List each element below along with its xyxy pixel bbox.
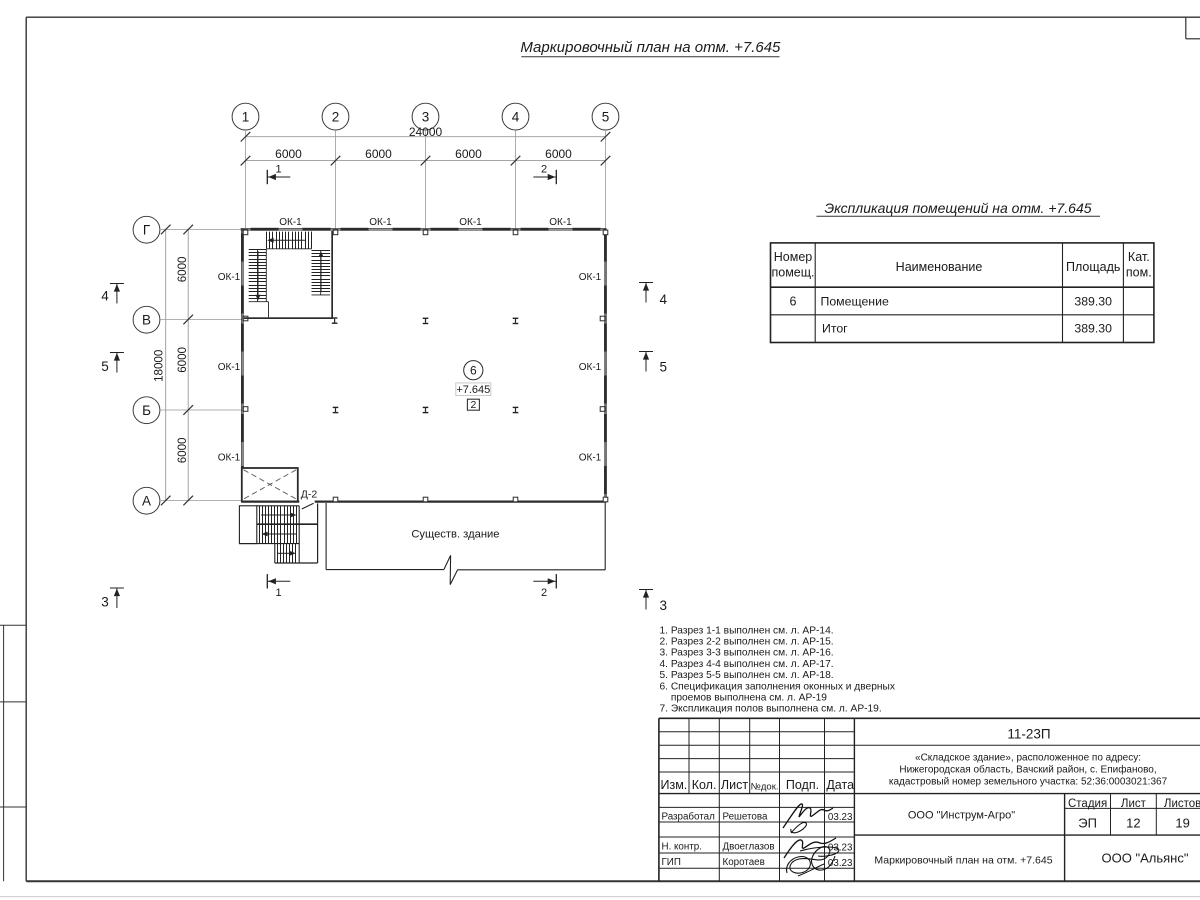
svg-text:А: А: [142, 494, 151, 509]
svg-text:Изм.: Изм.: [661, 778, 688, 792]
svg-text:1: 1: [276, 587, 282, 599]
svg-text:6: 6: [790, 295, 797, 309]
svg-text:2. Разрез 2-2 выполнен см. л.: 2. Разрез 2-2 выполнен см. л. АР-15.: [660, 637, 834, 648]
svg-text:№док.: №док.: [751, 782, 779, 793]
svg-text:Стадия: Стадия: [1068, 798, 1107, 810]
svg-text:ОК-1: ОК-1: [579, 272, 602, 283]
svg-text:5: 5: [602, 109, 610, 124]
svg-text:«Складское здание», расположен: «Складское здание», расположенное по адр…: [915, 753, 1141, 764]
svg-text:18000: 18000: [153, 350, 166, 382]
svg-text:Решетова: Решетова: [723, 811, 768, 822]
svg-text:6000: 6000: [176, 257, 189, 283]
svg-text:1: 1: [242, 109, 250, 124]
svg-text:6: 6: [470, 364, 477, 378]
svg-text:ОК-1: ОК-1: [549, 217, 572, 228]
svg-text:6000: 6000: [176, 438, 189, 464]
svg-text:3. Разрез 3-3 выполнен см. л.: 3. Разрез 3-3 выполнен см. л. АР-16.: [660, 648, 834, 659]
svg-text:ОК-1: ОК-1: [579, 453, 602, 464]
svg-text:Листов: Листов: [1164, 798, 1200, 810]
svg-text:6. Спецификация заполнения око: 6. Спецификация заполнения оконных и две…: [660, 680, 895, 692]
svg-text:Н. контр.: Н. контр.: [662, 842, 702, 853]
svg-text:Д-2: Д-2: [301, 489, 318, 501]
svg-text:ЭП: ЭП: [1078, 815, 1097, 830]
svg-text:6000: 6000: [176, 347, 189, 373]
svg-text:+7.645: +7.645: [456, 384, 490, 396]
svg-text:Итог: Итог: [822, 322, 848, 336]
svg-text:ООО "Инструм-Агро": ООО "Инструм-Агро": [908, 810, 1015, 822]
svg-text:ООО "Альянс": ООО "Альянс": [1102, 851, 1189, 866]
svg-text:помещ.: помещ.: [771, 266, 814, 280]
svg-text:ГИП: ГИП: [662, 857, 681, 868]
svg-text:4. Разрез 4-4 выполнен см. л.: 4. Разрез 4-4 выполнен см. л. АР-17.: [660, 659, 834, 670]
svg-text:ОК-1: ОК-1: [218, 362, 241, 373]
svg-text:03.23: 03.23: [828, 842, 853, 853]
svg-text:1: 1: [276, 164, 282, 176]
svg-text:389.30: 389.30: [1074, 322, 1112, 336]
svg-text:19: 19: [1175, 815, 1189, 830]
svg-text:ОК-1: ОК-1: [279, 217, 302, 228]
svg-text:В: В: [142, 313, 151, 328]
svg-text:ОК-1: ОК-1: [218, 453, 241, 464]
svg-text:03.23: 03.23: [828, 812, 853, 823]
svg-text:Подп.: Подп.: [786, 778, 819, 792]
svg-text:2: 2: [541, 164, 547, 176]
svg-text:пом.: пом.: [1126, 266, 1152, 280]
svg-text:ОК-1: ОК-1: [579, 362, 602, 373]
svg-text:3: 3: [101, 595, 109, 610]
svg-text:389.30: 389.30: [1074, 295, 1112, 309]
svg-text:5: 5: [660, 360, 668, 375]
svg-text:Лист: Лист: [721, 778, 748, 792]
svg-text:24000: 24000: [409, 125, 443, 139]
svg-text:Разработал: Разработал: [662, 811, 716, 822]
svg-text:ОК-1: ОК-1: [369, 217, 392, 228]
svg-text:4: 4: [660, 292, 668, 307]
svg-text:Лист: Лист: [1121, 798, 1147, 810]
svg-text:Маркировочный план на отм. +7.: Маркировочный план на отм. +7.645: [874, 854, 1052, 866]
svg-text:4: 4: [101, 289, 109, 304]
svg-text:6000: 6000: [275, 147, 302, 161]
svg-text:5. Разрез 5-5 выполнен см. л.: 5. Разрез 5-5 выполнен см. л. АР-18.: [660, 670, 834, 681]
svg-text:Дата: Дата: [826, 778, 854, 792]
svg-text:Коротаев: Коротаев: [723, 857, 765, 868]
svg-text:2: 2: [541, 587, 547, 599]
svg-text:Существ. здание: Существ. здание: [411, 529, 499, 541]
svg-text:Кол.: Кол.: [692, 778, 717, 792]
svg-text:6000: 6000: [455, 147, 482, 161]
svg-text:ОК-1: ОК-1: [218, 272, 241, 283]
svg-text:Маркировочный план на отм. +7.: Маркировочный план на отм. +7.645: [520, 39, 781, 56]
svg-text:3: 3: [660, 598, 668, 613]
svg-text:2: 2: [470, 399, 476, 411]
svg-text:кадастровый номер земельного у: кадастровый номер земельного участка: 52…: [889, 776, 1168, 787]
svg-text:11-23П: 11-23П: [1007, 726, 1050, 741]
svg-text:Помещение: Помещение: [821, 295, 889, 309]
svg-text:Экспликация помещений на отм.: Экспликация помещений на отм. +7.645: [824, 200, 1091, 216]
svg-text:5: 5: [101, 359, 109, 374]
svg-text:ОК-1: ОК-1: [459, 217, 482, 228]
svg-text:7. Экспликация полов выполнена: 7. Экспликация полов выполнена см. л. АР…: [660, 704, 882, 715]
svg-text:Кат.: Кат.: [1128, 250, 1150, 264]
svg-text:12: 12: [1126, 815, 1140, 830]
svg-text:4: 4: [512, 109, 520, 124]
svg-text:Б: Б: [142, 403, 151, 418]
svg-text:3: 3: [422, 109, 430, 124]
svg-text:Номер: Номер: [774, 250, 813, 264]
svg-text:1. Разрез 1-1 выполнен см. л.: 1. Разрез 1-1 выполнен см. л. АР-14.: [660, 625, 834, 636]
svg-text:Наименование: Наименование: [896, 260, 983, 274]
svg-text:Площадь: Площадь: [1066, 260, 1120, 274]
svg-text:6000: 6000: [545, 147, 572, 161]
svg-text:проемов выполнена см. л. АР-19: проемов выполнена см. л. АР-19: [660, 693, 828, 704]
svg-text:Двоеглазов: Двоеглазов: [723, 842, 775, 853]
svg-text:6000: 6000: [365, 147, 392, 161]
svg-text:2: 2: [332, 109, 340, 124]
svg-text:Нижегородская область, Вачский: Нижегородская область, Вачский район, с.…: [899, 763, 1156, 775]
svg-text:Г: Г: [143, 223, 151, 238]
